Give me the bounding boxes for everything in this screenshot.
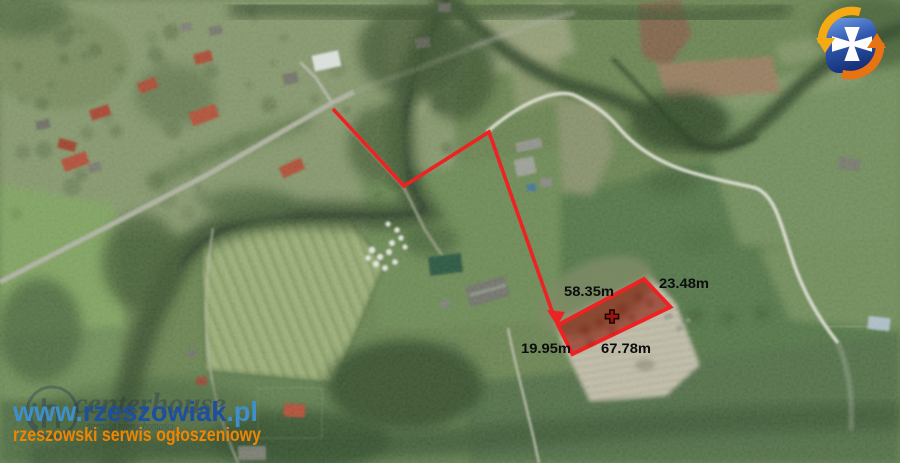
svg-text:58.35m: 58.35m [564,283,614,299]
svg-text:rzeszowski serwis ogłoszeniowy: rzeszowski serwis ogłoszeniowy [13,425,261,446]
svg-text:67.78m: 67.78m [601,340,651,356]
svg-text:19.95m: 19.95m [521,340,571,356]
svg-text:www.rzeszowiak.pl: www.rzeszowiak.pl [12,396,258,427]
svg-text:23.48m: 23.48m [659,275,709,291]
